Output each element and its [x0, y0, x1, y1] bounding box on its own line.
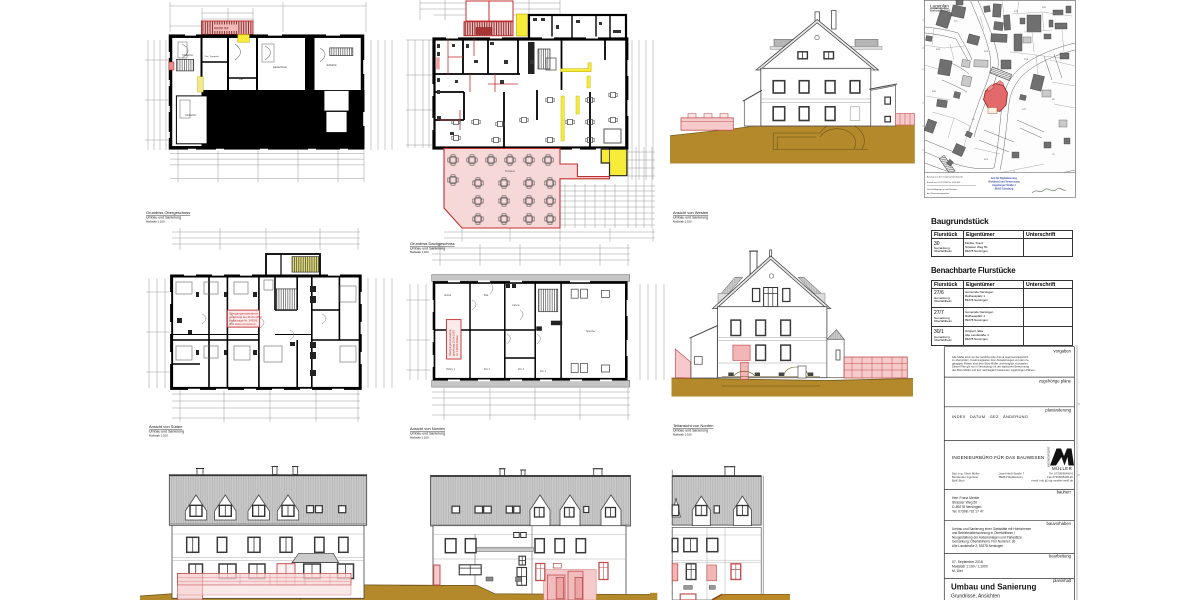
svg-text:D-89278 Nersingen: D-89278 Nersingen — [952, 505, 982, 509]
svg-text:Maßstab 1:100 / 1:1000: Maßstab 1:100 / 1:1000 — [952, 565, 988, 569]
svg-text:des Vermessungsamtes: des Vermessungsamtes — [927, 192, 949, 195]
svg-text:89312 Günzburg: 89312 Günzburg — [995, 188, 1014, 191]
svg-text:Speicher: Speicher — [586, 330, 596, 333]
svg-text:89264 Weißenhorn: 89264 Weißenhorn — [999, 475, 1023, 479]
svg-text:Maßstab 1:100: Maßstab 1:100 — [410, 250, 429, 254]
svg-text:Lageplan: Lageplan — [930, 4, 949, 9]
svg-text:Grundrisse, Ansichten: Grundrisse, Ansichten — [951, 593, 1000, 599]
svg-text:Zim 3: Zim 3 — [518, 368, 525, 371]
svg-text:Maßstab 1:100: Maßstab 1:100 — [673, 220, 692, 224]
svg-text:Ansicht von Westen: Ansicht von Westen — [673, 210, 708, 215]
svg-text:Erstellt am 12.07.2018 Nr. 20: Erstellt am 12.07.2018 Nr. 2018-441 — [927, 181, 961, 184]
svg-text:Tel. 07308 / 92 17 47: Tel. 07308 / 92 17 47 — [952, 510, 984, 514]
svg-text:MÜLLER: MÜLLER — [1052, 466, 1072, 471]
svg-text:Maßstab 1:100: Maßstab 1:100 — [410, 436, 429, 440]
svg-text:Strasser Weg 50: Strasser Weg 50 — [952, 501, 977, 505]
svg-text:planinhalt: planinhalt — [1053, 578, 1072, 583]
svg-text:Kinderzim.: Kinderzim. — [185, 114, 197, 117]
svg-text:Zim 4: Zim 4 — [540, 370, 547, 373]
svg-text:Hobby 1: Hobby 1 — [446, 368, 456, 371]
svg-text:INGENIEURBÜRO: INGENIEURBÜRO — [1048, 447, 1051, 467]
svg-text:bauvorhaben: bauvorhaben — [1047, 521, 1072, 526]
svg-text:Bad: Bad — [484, 294, 489, 297]
svg-text:INGENIEURBÜRO FÜR DAS BAUWESEN: INGENIEURBÜRO FÜR DAS BAUWESEN — [952, 454, 1044, 460]
svg-text:Terrasse: Terrasse — [505, 169, 516, 173]
svg-text:Zim 2: Zim 2 — [484, 368, 491, 371]
svg-text:Ansicht von Süden: Ansicht von Süden — [149, 424, 182, 429]
svg-text:Maßstab 1:100: Maßstab 1:100 — [149, 434, 168, 438]
svg-text:planänderung: planänderung — [1045, 408, 1071, 413]
svg-text:bauherr: bauherr — [1057, 490, 1072, 495]
svg-text:zugehörige pläne: zugehörige pläne — [1039, 379, 1072, 384]
svg-text:genehmigt 25.04.1993: genehmigt 25.04.1993 — [452, 330, 456, 356]
svg-text:Abstell: Abstell — [444, 294, 452, 297]
svg-text:Galerie: Galerie — [512, 304, 520, 307]
svg-text:(DG Hotel umnutzen): (DG Hotel umnutzen) — [229, 322, 255, 326]
svg-text:Flur, Treppenh.: Flur, Treppenh. — [205, 55, 220, 58]
svg-text:Auszug aus dem Liegenschaftska: Auszug aus dem Liegenschaftskataster — [927, 176, 964, 179]
svg-text:ByIK Büro: ByIK Büro — [952, 479, 965, 483]
svg-text:Vervielfältigung nur mit Erlau: Vervielfältigung nur mit Erlaubnis — [927, 188, 957, 191]
svg-text:Nr. 143/93 bleiben: Nr. 143/93 bleiben — [455, 334, 459, 356]
svg-text:Flur: Flur — [239, 78, 243, 81]
svg-text:Ansicht von Norden: Ansicht von Norden — [410, 426, 445, 431]
svg-text:Gastezimmer: Gastezimmer — [273, 66, 287, 69]
svg-text:Schlafzim.: Schlafzim. — [326, 64, 337, 67]
svg-text:bearbeitung: bearbeitung — [1049, 554, 1072, 559]
svg-text:M. Dier: M. Dier — [952, 569, 964, 573]
svg-text:vorgaben: vorgaben — [1054, 349, 1072, 354]
svg-text:des Büro Müller und den nachtr: des Büro Müller und den nachträglich bek… — [952, 368, 1035, 372]
svg-text:07. September 2018: 07. September 2018 — [952, 560, 983, 564]
svg-text:Grundriss Obergeschoss: Grundriss Obergeschoss — [146, 210, 190, 215]
svg-text:email: info @ ing-mueller-weiß: email: info @ ing-mueller-weiß.de — [1031, 479, 1073, 483]
svg-text:Herr Franz Merkle: Herr Franz Merkle — [952, 496, 979, 500]
svg-text:INDEX DATUM GEZ ÄNDERUNG: INDEX DATUM GEZ ÄNDERUNG — [952, 414, 1028, 419]
svg-text:Übergangsmassnahme: Übergangsmassnahme — [448, 329, 452, 356]
svg-text:Alte Landstraße 2; 89278 Nersi: Alte Landstraße 2; 89278 Nersingen — [952, 544, 1003, 548]
svg-text:Maßstab 1 : 1000: Maßstab 1 : 1000 — [930, 9, 951, 13]
svg-text:Grundriss Dachgeschoss: Grundriss Dachgeschoss — [410, 241, 455, 246]
svg-text:#### ##: #### ## — [214, 26, 229, 31]
svg-text:Umbau und Sanierung: Umbau und Sanierung — [951, 583, 1036, 592]
svg-text:Kinderzim.: Kinderzim. — [182, 54, 194, 57]
